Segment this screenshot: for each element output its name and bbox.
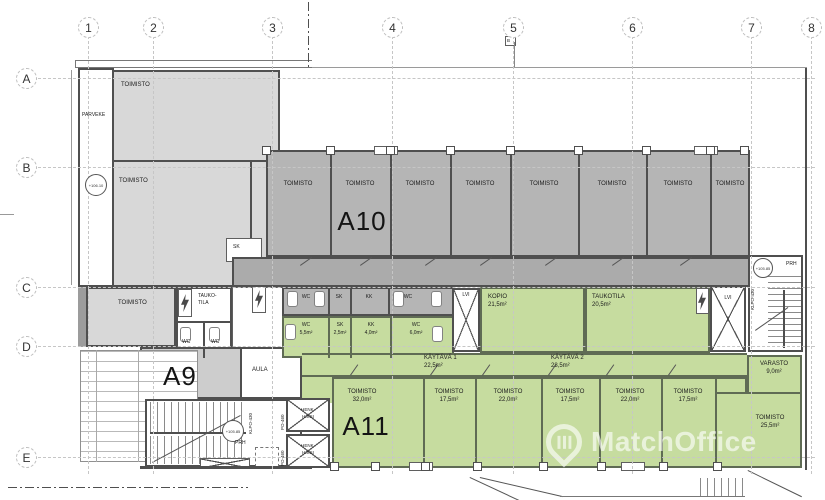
window-marker: [642, 146, 651, 155]
wall: [388, 287, 390, 316]
floor-plan: 1 2 3 4 5 6 7 8 A B C D E B PARVEKE +106…: [0, 0, 825, 500]
a11-office-label: TOIMISTO: [494, 389, 523, 397]
room-corner-office-area: 25,5m²: [761, 423, 780, 431]
wet-gray-wc2-label: WC: [404, 294, 412, 300]
wc-label: WC: [182, 339, 190, 345]
entrance-steps: [700, 478, 745, 496]
room-parveke-label: PARVEKE: [82, 112, 105, 118]
wall: [203, 321, 205, 358]
watermark: MatchOffice: [546, 424, 757, 460]
grid-line-row-b: [38, 167, 815, 168]
grid-bubble-b: B: [16, 157, 37, 178]
marker-pole: [514, 42, 515, 68]
elevator-2-label1: HENK.: [301, 443, 315, 449]
a11-office-area: 22,0m²: [621, 397, 640, 405]
window-marker: [574, 146, 583, 155]
wc-label: WC: [211, 339, 219, 345]
edge-tick: [0, 214, 14, 215]
level-mark-right-stair: +105.85: [753, 258, 773, 278]
wet-green-room-area: 4,0m²: [365, 330, 378, 336]
a10-office-label: TOIMISTO: [466, 181, 495, 189]
level-mark-left-stair: +105.85: [222, 420, 244, 442]
room-taukotila-small-label1: TAUKO-: [198, 293, 217, 299]
window-marker: [659, 462, 668, 471]
entrance-ramp-line: [748, 470, 802, 497]
wet-green-room-label: KK: [368, 322, 375, 328]
facade-pier: [621, 462, 645, 471]
wet-green-room-area: 6,0m²: [410, 330, 423, 336]
window-marker: [330, 462, 339, 471]
room-toimisto-sw-label: TOIMISTO: [118, 300, 147, 308]
grid-line-row-a: [38, 78, 815, 79]
corridor-2-area: 28,5m²: [551, 363, 570, 371]
wc-fixture: [431, 291, 442, 307]
grid-line-col-5: [513, 36, 514, 474]
a10-office-label: TOIMISTO: [406, 181, 435, 189]
grid-line-col-2: [153, 36, 154, 474]
window-marker: [446, 146, 455, 155]
wc-fixture: [285, 324, 296, 340]
shaft-lvi-left-label: LVI: [462, 292, 469, 298]
room-toimisto-nw-label: TOIMISTO: [121, 82, 150, 90]
room-toimisto-w-label: TOIMISTO: [119, 178, 148, 186]
corridor-kaytava: [302, 353, 747, 377]
level-mark-parveke: +106.10: [85, 174, 107, 196]
wet-gray-wc1-label: WC: [302, 294, 310, 300]
boundary-line: [8, 487, 248, 488]
window-marker: [473, 462, 482, 471]
a10-office-label: TOIMISTO: [598, 181, 627, 189]
grid-bubble-2: 2: [143, 17, 164, 38]
entrance-edge-line: [560, 496, 745, 497]
elevator-1-label2: HISSI: [302, 414, 314, 420]
elevator-2-code: PO-460: [280, 438, 285, 466]
window-marker: [597, 462, 606, 471]
window-marker: [371, 462, 380, 471]
wet-green-room-area: 2,5m²: [334, 330, 347, 336]
grid-bubble-4: 4: [382, 17, 403, 38]
grid-bubble-8: 8: [801, 17, 822, 38]
wet-gray-kk-label: KK: [366, 294, 373, 300]
a11-office-label: TOIMISTO: [674, 389, 703, 397]
elevator-1-label1: HENK.: [301, 407, 315, 413]
room-a9-label: A9: [163, 360, 197, 393]
block-a10-label: A10: [337, 205, 386, 238]
a11-office-area: 32,0m²: [353, 397, 372, 405]
room-taukotila-area: 20,5m²: [592, 302, 611, 310]
elevator-1-code: PO-460: [280, 402, 285, 430]
section-line: [308, 2, 309, 68]
window-marker: [386, 146, 395, 155]
window-marker: [706, 146, 715, 155]
upper-facade-line: [312, 67, 807, 68]
wet-green-room-label: WC: [412, 322, 420, 328]
grid-bubble-a: A: [16, 68, 37, 89]
room-corner-office-label: TOIMISTO: [756, 415, 785, 423]
wc-fixture: [393, 291, 404, 307]
wall: [328, 316, 330, 358]
stairwell-right-label: PRH: [786, 261, 797, 267]
closet-sk-label: SK: [233, 244, 240, 250]
roof-canopy-edge: [75, 60, 312, 68]
window-marker: [262, 146, 271, 155]
wall: [350, 287, 352, 316]
window-marker: [740, 146, 749, 155]
a10-office-label: TOIMISTO: [530, 181, 559, 189]
room-varasto-area: 9,0m²: [766, 369, 781, 377]
section-flag-label: B: [507, 38, 510, 44]
grid-line-col-3: [272, 36, 273, 474]
grid-bubble-6: 6: [622, 17, 643, 38]
room-varasto-label: VARASTO: [760, 361, 788, 369]
room-kopio-label: KOPIO: [488, 294, 507, 302]
stair-rail: [783, 290, 785, 348]
a10-office-label: TOIMISTO: [716, 181, 745, 189]
grid-line-col-4: [392, 36, 393, 474]
wc-fixture: [432, 326, 443, 342]
wall: [475, 379, 477, 466]
a11-office-label: TOIMISTO: [435, 389, 464, 397]
window-marker: [421, 462, 430, 471]
wet-green-room-label: WC: [302, 322, 310, 328]
south-wall-left: [140, 466, 312, 469]
wall: [423, 379, 425, 466]
a11-office-label: TOIMISTO: [348, 389, 377, 397]
wc-fixture: [314, 291, 325, 307]
corridor-a10: [232, 257, 750, 287]
grid-bubble-1: 1: [78, 17, 99, 38]
stairwell-left-label: PRH: [235, 440, 246, 446]
stair-code-label: KLPO-430: [750, 278, 755, 310]
window-marker: [539, 462, 548, 471]
canopy-line: [138, 350, 139, 462]
grid-bubble-e: E: [16, 447, 37, 468]
room-toimisto-sw: [86, 287, 176, 347]
corridor-2-label: KÄYTÄVÄ 2: [551, 355, 584, 363]
wet-green-room-area: 5,5m²: [300, 330, 313, 336]
grid-line-col-7: [751, 36, 752, 474]
a11-office-label: TOIMISTO: [616, 389, 645, 397]
grid-bubble-5: 5: [503, 17, 524, 38]
window-marker: [506, 146, 515, 155]
wet-green-room-label: SK: [337, 322, 344, 328]
grid-line-row-c: [38, 287, 815, 288]
grid-line-col-1: [88, 36, 89, 474]
east-outer-wall: [805, 68, 807, 470]
a10-office-label: TOIMISTO: [664, 181, 693, 189]
grid-line-row-d: [38, 346, 815, 347]
watermark-text: MatchOffice: [591, 426, 757, 458]
grid-bubble-7: 7: [741, 17, 762, 38]
shaft-lvi-right-label: LVI: [724, 295, 731, 301]
wc-fixture: [287, 291, 298, 307]
corridor-1-label: KÄYTÄVÄ 1: [424, 355, 457, 363]
a11-office-label: TOIMISTO: [556, 389, 585, 397]
matchoffice-pin-icon: [539, 417, 590, 468]
wall: [541, 379, 543, 466]
grid-bubble-c: C: [16, 277, 37, 298]
elevator-2-label2: HISSI: [302, 450, 314, 456]
wall: [350, 316, 352, 358]
stair-code-label: KLPO-430: [248, 404, 253, 434]
a10-office-label: TOIMISTO: [346, 181, 375, 189]
building-icon: [557, 436, 571, 449]
window-marker: [326, 146, 335, 155]
block-a11-label: A11: [342, 410, 389, 443]
grid-line-col-8: [811, 36, 812, 474]
room-taukotila-label: TAUKOTILA: [592, 294, 625, 302]
wet-row-gray: [282, 287, 454, 316]
grid-bubble-d: D: [16, 336, 37, 357]
canopy-line: [96, 350, 97, 462]
window-marker: [713, 462, 722, 471]
corridor-1-area: 22,5m²: [424, 363, 443, 371]
room-aula-label: AULA: [252, 367, 268, 375]
grid-line-col-6: [632, 36, 633, 474]
room-taukotila-small-label2: TILA: [198, 300, 209, 306]
balcony-rail-line: [71, 70, 72, 285]
grid-bubble-3: 3: [262, 17, 283, 38]
a11-office-area: 17,5m²: [679, 397, 698, 405]
room-kopio-area: 21,5m²: [488, 302, 507, 310]
a10-office-label: TOIMISTO: [284, 181, 313, 189]
wet-gray-sk-label: SK: [336, 294, 343, 300]
a11-office-area: 22,0m²: [499, 397, 518, 405]
a11-office-area: 17,5m²: [440, 397, 459, 405]
wall: [328, 287, 330, 316]
a11-office-area: 17,5m²: [561, 397, 580, 405]
